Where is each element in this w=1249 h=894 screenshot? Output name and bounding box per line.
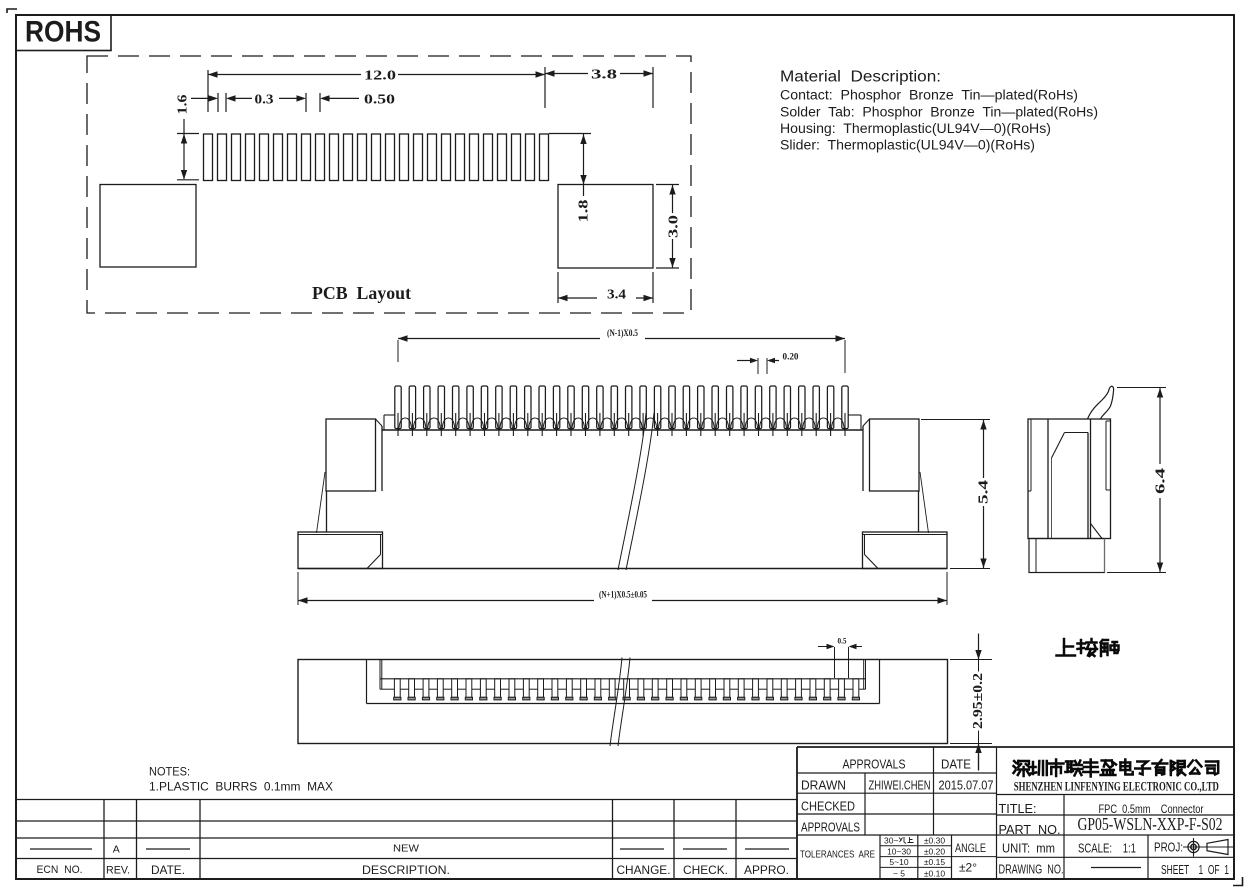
svg-text:±0.20: ±0.20 <box>924 846 945 856</box>
svg-text:12.0: 12.0 <box>364 69 396 84</box>
svg-text:DATE.: DATE. <box>151 863 185 877</box>
svg-text:SHEET 1 OF 1: SHEET 1 OF 1 <box>1161 863 1229 877</box>
svg-text:6.4: 6.4 <box>1154 468 1169 494</box>
svg-text:APPROVALS: APPROVALS <box>843 758 906 772</box>
svg-text:Contact: Phosphor Bronze Ti: Contact: Phosphor Bronze Tin—plated(RoHs… <box>780 88 1078 103</box>
svg-text:0.3: 0.3 <box>255 92 274 107</box>
svg-text:ANGLE: ANGLE <box>955 843 986 855</box>
svg-text:Material Description:: Material Description: <box>780 69 941 86</box>
svg-text:DESCRIPTION.: DESCRIPTION. <box>362 863 450 877</box>
svg-text:5~10: 5~10 <box>889 857 908 867</box>
svg-text:0.5: 0.5 <box>838 637 847 646</box>
svg-text:PROJ:: PROJ: <box>1154 841 1183 855</box>
svg-text:APPROVALS: APPROVALS <box>801 821 860 835</box>
svg-text:3.8: 3.8 <box>591 68 617 83</box>
svg-text:1.8: 1.8 <box>577 200 592 223</box>
svg-text:SHENZHEN LINFENYING ELECTRONIC: SHENZHEN LINFENYING ELECTRONIC CO.,LTD <box>1014 779 1219 794</box>
svg-text:CHECK.: CHECK. <box>683 863 728 877</box>
svg-text:APPRO.: APPRO. <box>744 863 789 877</box>
svg-text:5.4: 5.4 <box>977 480 992 504</box>
svg-text:2.95±0.2: 2.95±0.2 <box>970 673 985 729</box>
svg-text:TOLERANCES ARE: TOLERANCES ARE <box>800 849 875 861</box>
svg-text:ROHS: ROHS <box>25 16 101 49</box>
svg-text:Solder Tab: Phosphor Bronze: Solder Tab: Phosphor Bronze Tin—plated(R… <box>780 104 1098 119</box>
svg-text:NOTES:: NOTES: <box>149 765 190 779</box>
svg-text:ZHIWEI.CHEN: ZHIWEI.CHEN <box>869 779 931 793</box>
svg-text:DRAWING NO.: DRAWING NO. <box>999 863 1064 877</box>
svg-text:DRAWN: DRAWN <box>801 779 846 793</box>
svg-text:SCALE: 1:1: SCALE: 1:1 <box>1078 842 1136 856</box>
svg-text:0.20: 0.20 <box>783 353 799 363</box>
svg-text:1.6: 1.6 <box>176 95 191 115</box>
svg-text:A: A <box>113 844 120 856</box>
svg-text:PCB Layout: PCB Layout <box>312 283 411 303</box>
svg-text:PART NO.: PART NO. <box>999 823 1061 837</box>
svg-text:UNIT: mm: UNIT: mm <box>1002 842 1055 856</box>
svg-text:1.PLASTIC BURRS 0.1mm MAX: 1.PLASTIC BURRS 0.1mm MAX <box>149 780 333 794</box>
svg-text:3.0: 3.0 <box>667 215 682 238</box>
svg-text:±2°: ±2° <box>959 863 977 875</box>
svg-text:~ 5: ~ 5 <box>893 868 905 878</box>
svg-text:CHANGE.: CHANGE. <box>617 863 671 877</box>
svg-text:2015.07.07: 2015.07.07 <box>939 779 994 793</box>
svg-text:GP05-WSLN-XXP-F-S02: GP05-WSLN-XXP-F-S02 <box>1078 814 1223 834</box>
svg-text:3.4: 3.4 <box>607 288 626 303</box>
svg-text:10~30: 10~30 <box>887 846 911 856</box>
svg-text:ECN NO.: ECN NO. <box>37 864 83 876</box>
svg-text:±0.10: ±0.10 <box>924 868 945 878</box>
svg-text:DATE: DATE <box>941 758 971 772</box>
svg-text:30~: 30~ <box>884 836 898 846</box>
svg-text:±0.30: ±0.30 <box>924 836 945 846</box>
svg-text:(N+1)X0.5±0.05: (N+1)X0.5±0.05 <box>599 590 647 601</box>
svg-text:TITLE:: TITLE: <box>999 802 1037 816</box>
svg-text:0.50: 0.50 <box>364 92 395 107</box>
svg-text:Slider: Thermoplastic(UL94V—0: Slider: Thermoplastic(UL94V—0)(RoHs) <box>780 137 1035 152</box>
svg-text:NEW: NEW <box>393 843 419 855</box>
svg-text:REV.: REV. <box>106 865 130 877</box>
svg-text:(N-1)X0.5: (N-1)X0.5 <box>607 328 638 339</box>
svg-text:CHECKED: CHECKED <box>801 800 855 814</box>
svg-text:±0.15: ±0.15 <box>924 857 945 867</box>
svg-text:Housing: Thermoplastic(UL94V—: Housing: Thermoplastic(UL94V—0)(RoHs) <box>780 121 1051 136</box>
